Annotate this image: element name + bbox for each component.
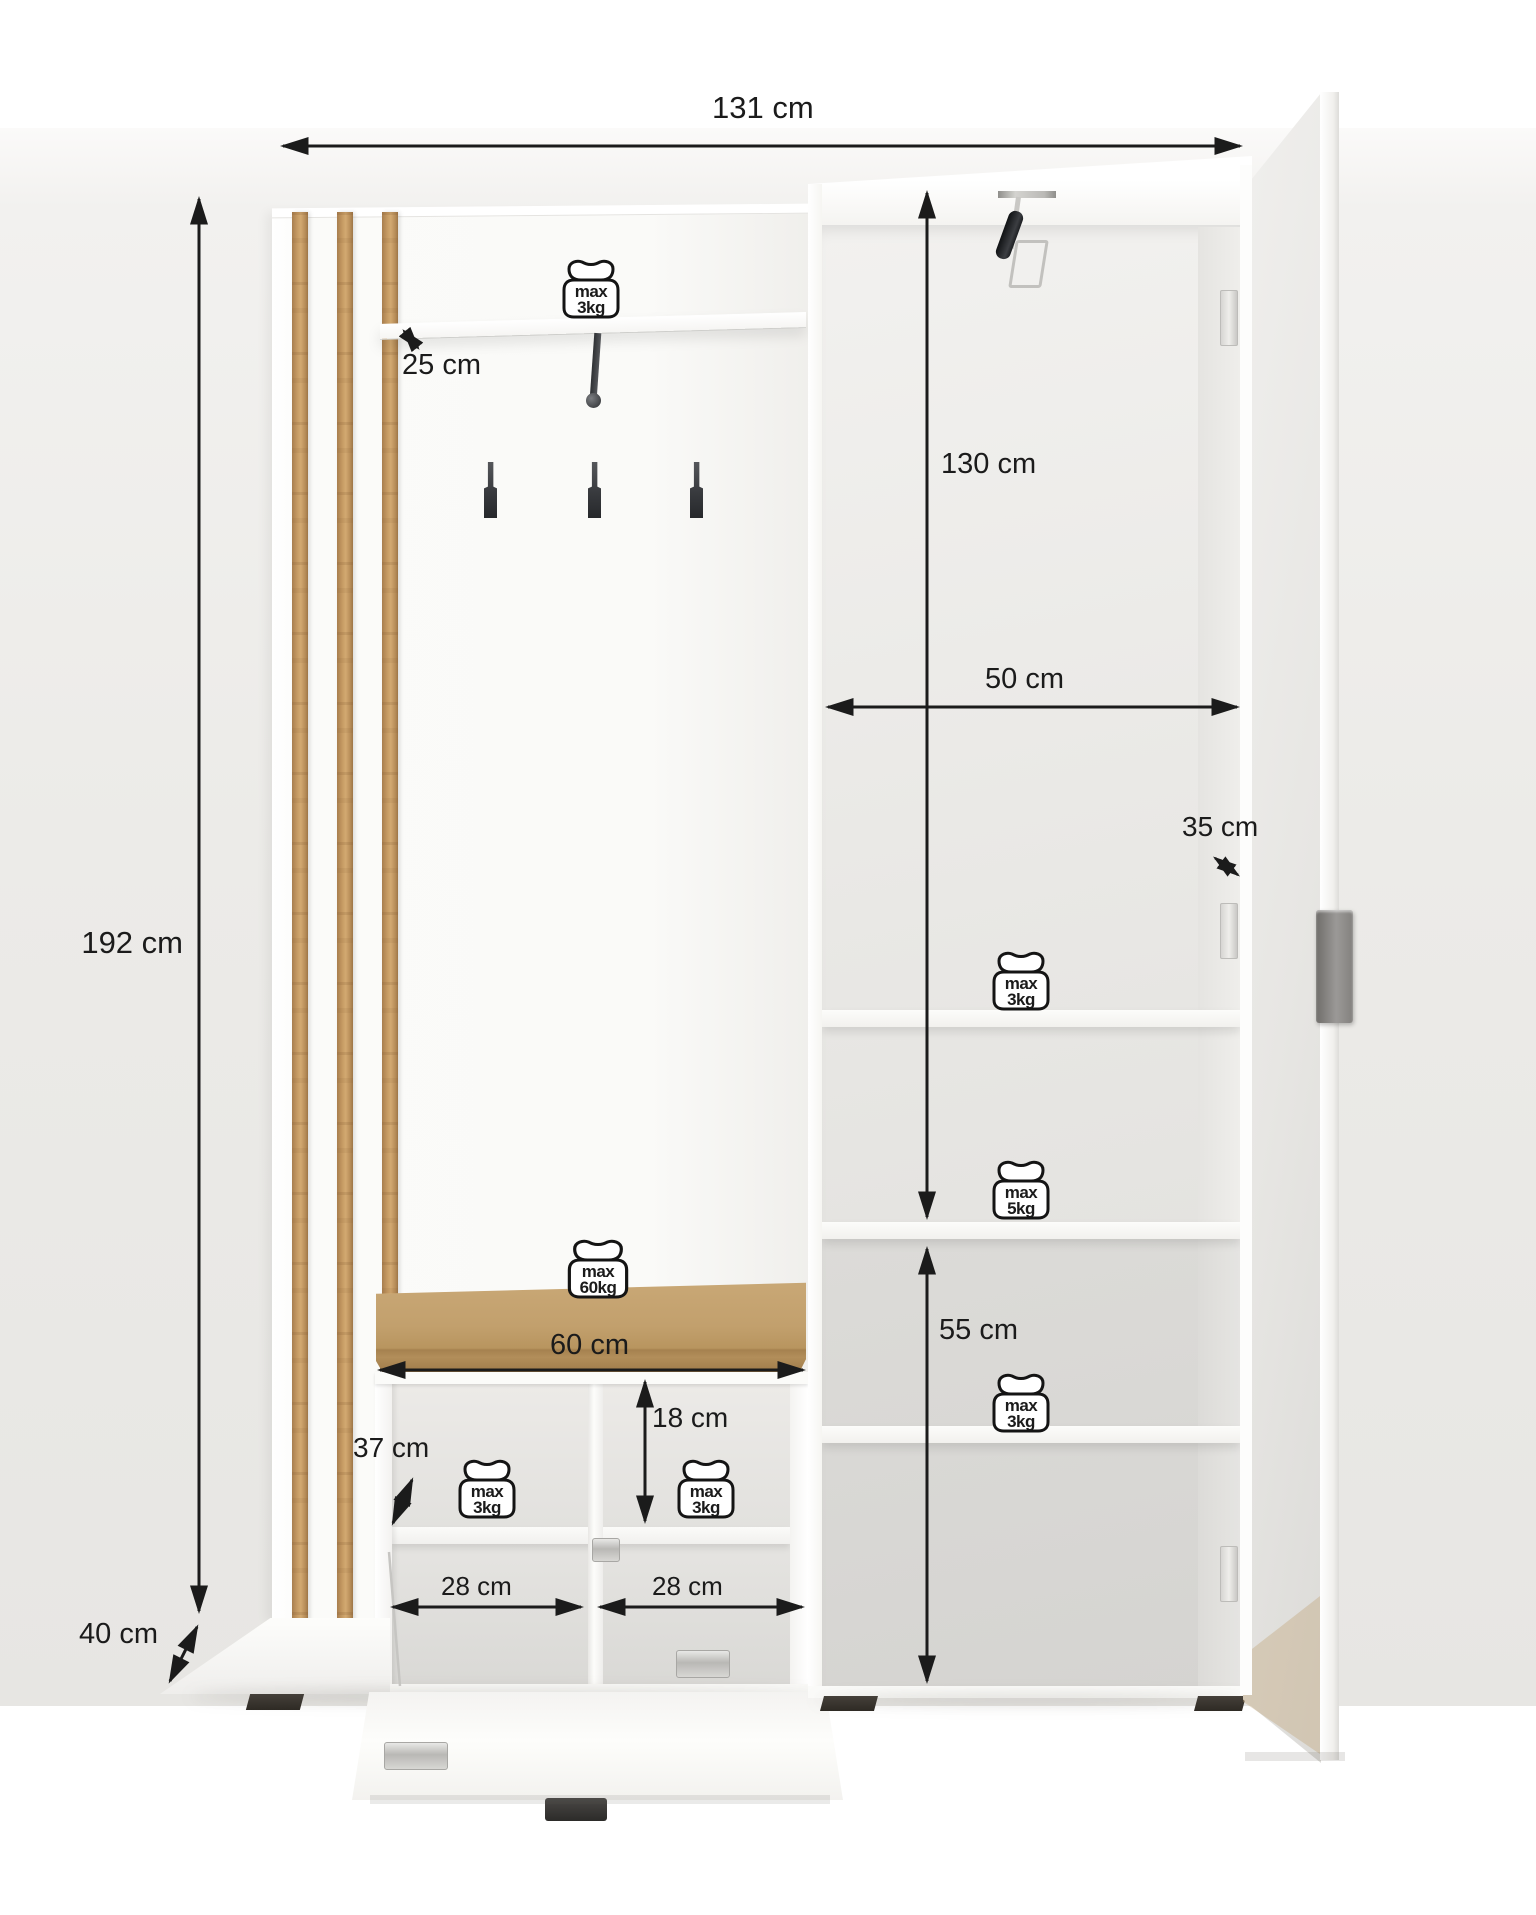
furniture-foot [820, 1696, 878, 1711]
dimension-label-lower-height: 55 cm [939, 1316, 1018, 1345]
max-load-value: 60kg [569, 1279, 627, 1296]
shoe-cabinet-top [375, 1372, 808, 1384]
max-load-value: 3kg [460, 1499, 514, 1516]
door-hinge [1220, 903, 1238, 959]
furniture-foot [246, 1694, 304, 1710]
pull-down-rod-knob [586, 393, 601, 408]
floor-shadow [1245, 1752, 1345, 1761]
max-load-badge-icon: max 3kg [558, 257, 624, 319]
compartment-shade [822, 1443, 1240, 1686]
pull-out-hanger-rail [998, 191, 1056, 198]
dimension-label-total-depth: 40 cm [79, 1620, 158, 1649]
door-hinge [1220, 1546, 1238, 1602]
dimension-label-shoe-height: 18 cm [652, 1404, 728, 1432]
dimension-label-shoe-left-width: 28 cm [441, 1573, 512, 1599]
max-load-badge-icon: max 60kg [563, 1237, 633, 1299]
max-load-value: 3kg [679, 1499, 733, 1516]
dimension-label-inner-height: 130 cm [941, 450, 1036, 479]
dimension-label-bench-width: 60 cm [550, 1331, 629, 1360]
max-load-badge-icon: max 5kg [988, 1158, 1054, 1220]
max-load-badge-icon: max 3kg [988, 949, 1054, 1011]
flap-hinge [384, 1742, 448, 1770]
tall-cabinet-left-edge [808, 184, 822, 1694]
max-load-badge-icon: max 3kg [673, 1457, 739, 1519]
tall-cabinet-right-edge [1240, 165, 1252, 1695]
max-load-value: 3kg [994, 991, 1048, 1008]
flap-hinge [676, 1650, 730, 1678]
floor-shadow [370, 1795, 830, 1804]
dimension-label-total-height: 192 cm [63, 927, 183, 958]
max-load-badge-icon: max 3kg [988, 1371, 1054, 1433]
dimension-label-shoe-depth: 37 cm [353, 1434, 429, 1462]
max-load-value: 5kg [994, 1200, 1048, 1217]
max-load-value: 3kg [994, 1413, 1048, 1430]
dimension-label-shelf-depth: 25 cm [402, 351, 481, 380]
cabinet-door-inner-face [1243, 93, 1321, 1763]
dimension-label-inner-width: 50 cm [985, 665, 1064, 694]
furniture-dimension-diagram: 131 cm 192 cm 40 cm 25 cm 130 cm 50 cm 3… [0, 0, 1536, 1915]
furniture-foot [1194, 1696, 1246, 1711]
door-handle [1316, 910, 1353, 1023]
flap-hinge [592, 1538, 620, 1562]
dimension-label-total-width: 131 cm [712, 92, 814, 123]
tall-cabinet-shelf [822, 1222, 1240, 1239]
door-hinge [1220, 290, 1238, 346]
shoe-cabinet-right-wall [790, 1372, 808, 1692]
wood-slat [292, 212, 308, 1622]
max-load-badge-icon: max 3kg [454, 1457, 520, 1519]
max-load-value: 3kg [564, 299, 618, 316]
tall-cabinet-shelf [822, 1010, 1240, 1027]
dimension-label-inner-depth: 35 cm [1182, 813, 1258, 841]
floor-shadow [815, 1694, 1245, 1705]
wood-slat [337, 212, 353, 1622]
dimension-label-shoe-right-width: 28 cm [652, 1573, 723, 1599]
